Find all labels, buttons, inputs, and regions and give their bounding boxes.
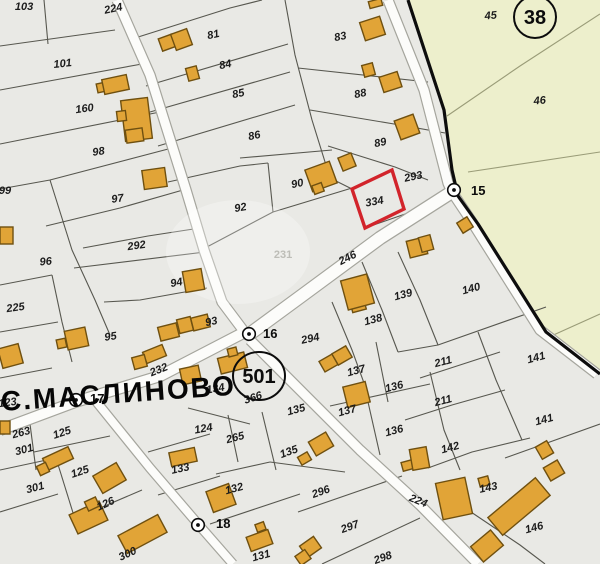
parcel-label: 231 [274,249,292,261]
node-dot [196,523,200,527]
parcel-label: 83 [333,30,347,44]
cadastral-map-svg[interactable]: 1516181722410310116098972929699225959493… [0,0,600,564]
building [142,167,167,189]
parcel-label: 45 [483,9,498,22]
parcel-label: 92 [233,201,247,215]
parcel-label: 46 [532,94,547,107]
node-dot [247,332,251,336]
parcel-label: 96 [39,255,53,268]
building [409,447,429,471]
node-label: 17 [90,391,104,406]
building [362,63,376,77]
building [116,110,126,121]
parcel-label: 94 [169,276,183,290]
building [56,338,67,349]
building [0,227,13,244]
building [227,347,238,357]
badge-number: 38 [524,7,546,29]
parcel-label: 93 [204,315,218,329]
node-label: 16 [263,326,277,341]
node-label: 15 [471,183,485,198]
parcel-label: 103 [15,1,33,13]
building [186,66,200,81]
parcel-label: 84 [218,58,232,72]
node-dot [452,188,456,192]
parcel-label: 81 [206,28,220,42]
building [180,365,202,385]
node-dot [74,398,78,402]
building [0,421,10,434]
badge-number: 501 [242,366,275,388]
building [64,327,88,350]
building [182,269,204,293]
building [125,128,144,143]
parcel-label: 99 [0,185,12,197]
node-label: 18 [216,516,230,531]
building [343,382,370,408]
cadastral-map-canvas[interactable]: 1516181722410310116098972929699225959493… [0,0,600,564]
parcel-label: 101 [53,57,73,71]
building [132,355,148,370]
